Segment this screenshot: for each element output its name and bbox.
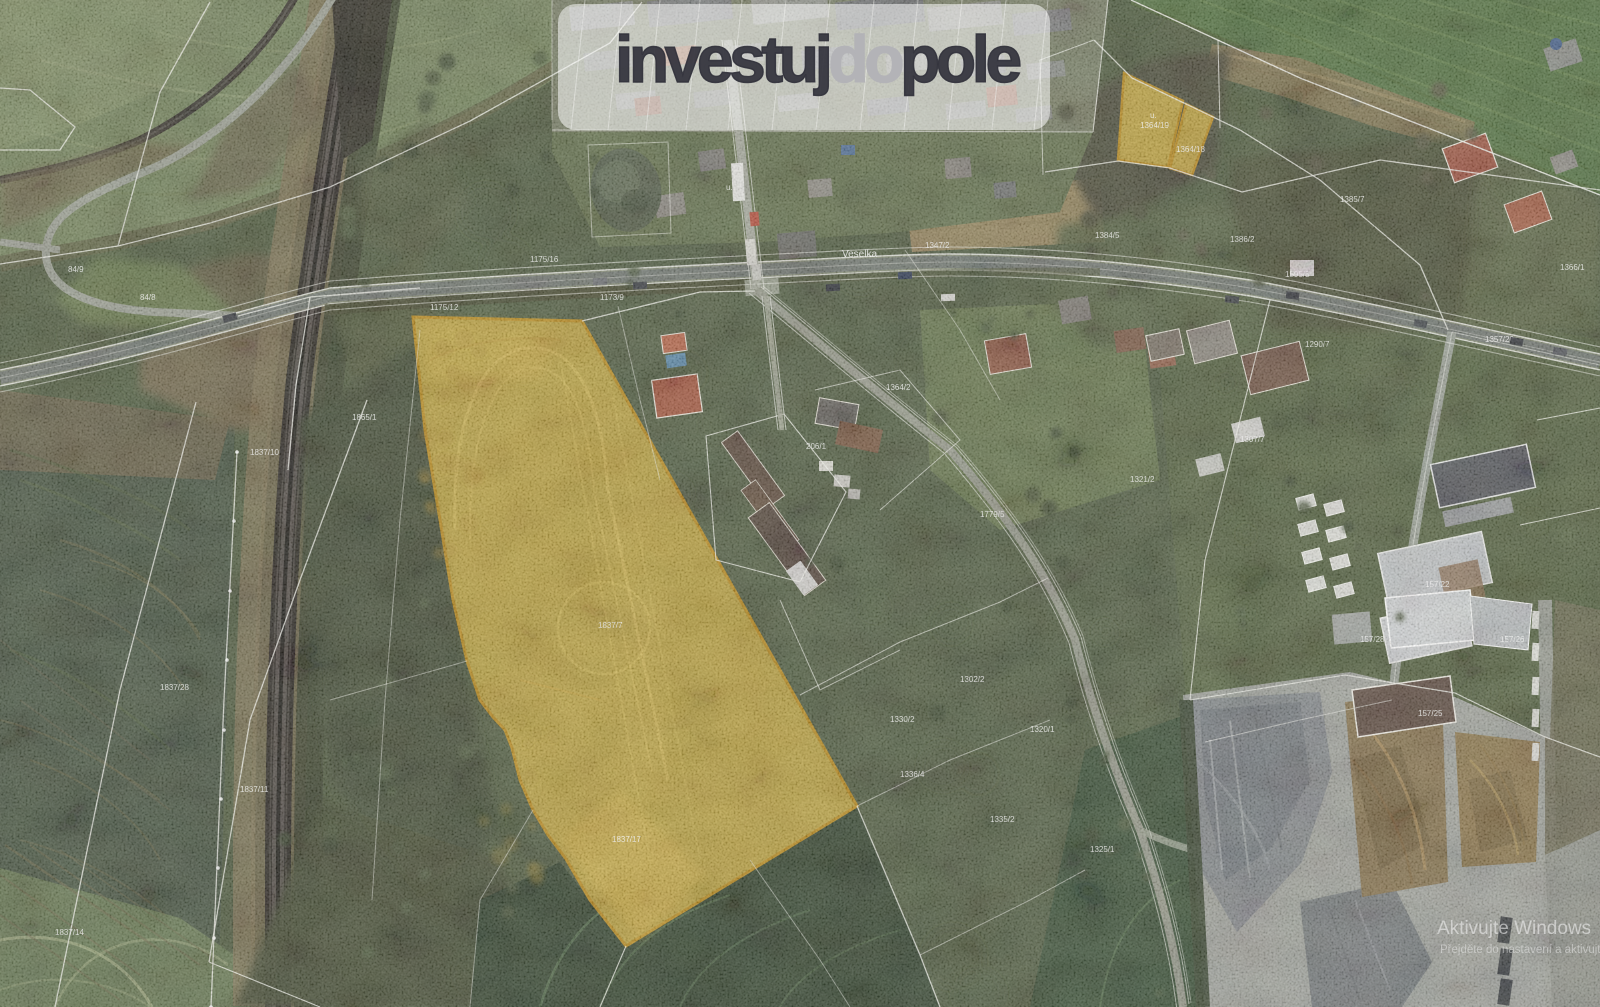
svg-text:investujdopole: investujdopole: [615, 22, 1021, 96]
svg-text:Přejděte do nastavení a aktivu: Přejděte do nastavení a aktivujte: [1440, 944, 1600, 956]
svg-text:Aktivujte Windows: Aktivujte Windows: [1437, 918, 1591, 939]
